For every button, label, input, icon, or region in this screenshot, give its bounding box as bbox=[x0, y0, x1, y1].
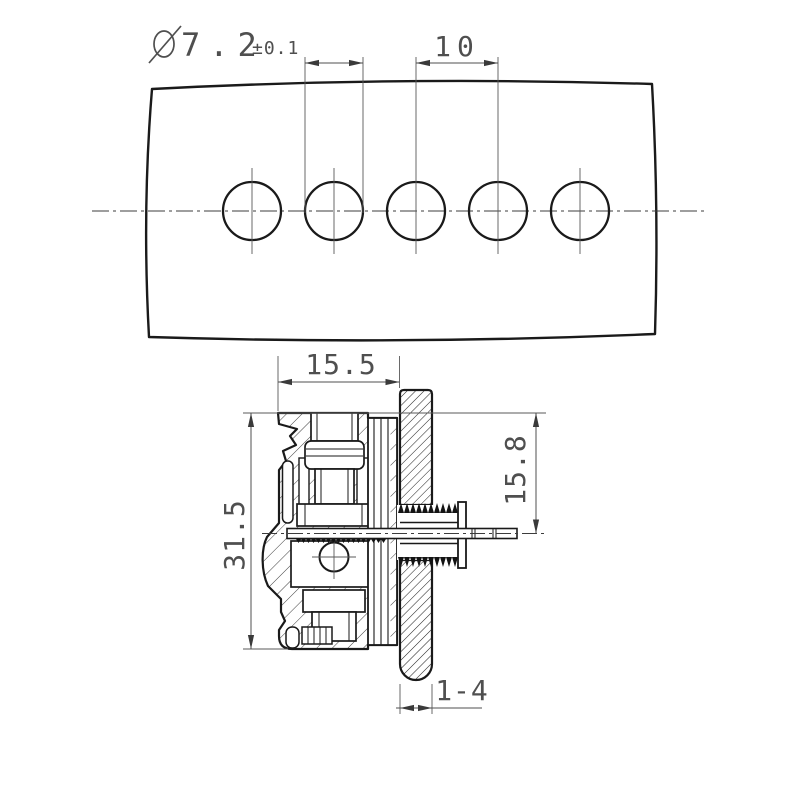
clip-spring-slot bbox=[283, 461, 294, 523]
dim-body-width: 15.5 bbox=[278, 348, 400, 411]
dim-center-height: 15.8 bbox=[499, 413, 539, 534]
dim-body-height-value: 31.5 bbox=[218, 499, 251, 570]
panel-lower bbox=[400, 560, 432, 680]
dim-hole-diameter-tolerance: ±0.1 bbox=[252, 38, 299, 59]
dim-body-width-value: 15.5 bbox=[305, 348, 376, 381]
connector-section-view: 15.5 31.5 15.8 1-4 bbox=[218, 348, 548, 714]
dim-center-height-value: 15.8 bbox=[499, 434, 532, 505]
dim-hole-spacing-value: 10 bbox=[434, 30, 480, 63]
panel-front-view: 7.2 ±0.1 10 bbox=[92, 26, 706, 340]
diameter-symbol bbox=[149, 26, 181, 63]
center-block bbox=[291, 536, 374, 587]
technical-drawing: 7.2 ±0.1 10 bbox=[0, 0, 800, 800]
dim-panel-thickness-value: 1-4 bbox=[435, 674, 489, 707]
drawing-canvas: 7.2 ±0.1 10 bbox=[0, 0, 800, 800]
panel-upper bbox=[400, 390, 432, 505]
